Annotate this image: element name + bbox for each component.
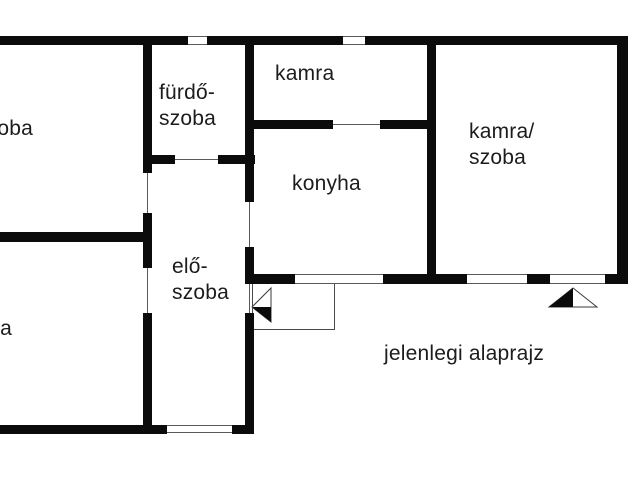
wall-segment: [0, 425, 167, 434]
wall-segment: [0, 36, 188, 45]
opening-line: [333, 124, 380, 125]
wall-segment: [143, 36, 152, 173]
opening-line: [167, 432, 232, 433]
room-label-furdo-szoba: fürdő- szoba: [159, 80, 216, 132]
opening-line: [550, 274, 605, 275]
room-label-szoba-top-left: szoba: [0, 116, 33, 142]
room-label-elo-szoba: elő- szoba: [172, 254, 229, 306]
opening-line: [343, 36, 365, 37]
opening-line: [295, 283, 383, 284]
wall-segment: [245, 274, 295, 284]
room-label-konyha: konyha: [292, 171, 361, 197]
opening-line: [167, 425, 232, 426]
wall-segment: [427, 36, 436, 284]
caption-jelenlegi-alaprajz: jelenlegi alaprajz: [384, 342, 544, 366]
wall-segment: [218, 155, 255, 164]
wall-segment: [365, 36, 628, 45]
wall-segment: [617, 36, 628, 284]
wall-segment: [245, 36, 254, 202]
room-label-kamra: kamra: [275, 61, 334, 87]
opening-line: [249, 202, 250, 247]
wall-segment: [0, 232, 152, 242]
opening-line: [550, 283, 605, 284]
opening-line: [188, 36, 207, 37]
wall-segment: [527, 274, 550, 284]
wall-segment: [143, 155, 175, 164]
floor-plan-canvas: jelenlegi alaprajz szobafürdő- szobakamr…: [0, 0, 640, 480]
opening-line: [467, 274, 527, 275]
room-label-kamra-szoba: kamra/ szoba: [469, 119, 534, 171]
opening-line: [188, 44, 207, 45]
wall-segment: [143, 313, 152, 434]
wall-segment: [207, 36, 343, 45]
opening-line: [343, 44, 365, 45]
entrance-step-outline: [252, 283, 335, 330]
wall-segment: [605, 274, 628, 284]
opening-line: [467, 283, 527, 284]
opening-line: [249, 284, 250, 313]
opening-line: [175, 159, 218, 160]
wall-segment: [245, 120, 333, 129]
opening-line: [295, 274, 383, 275]
opening-line: [147, 268, 148, 313]
wall-segment: [383, 274, 467, 284]
opening-line: [147, 173, 148, 213]
wall-segment: [245, 313, 254, 434]
room-label-szoba-bottom-left: szoba: [0, 316, 12, 342]
wall-segment: [232, 425, 254, 434]
